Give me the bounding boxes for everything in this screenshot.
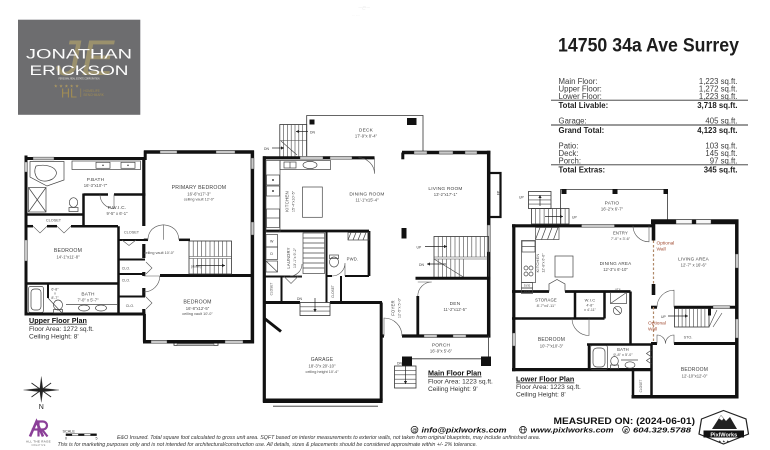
svg-text:BEDROOM: BEDROOM	[681, 367, 708, 373]
svg-text:Total Extras:: Total Extras:	[559, 165, 606, 174]
svg-text:16'-2"x 6'-7": 16'-2"x 6'-7"	[601, 206, 624, 211]
svg-text:PRIMARY BEDROOM: PRIMARY BEDROOM	[172, 185, 227, 191]
svg-text:604.329.5788: 604.329.5788	[633, 425, 692, 434]
svg-text:7'-0" x 3'-6": 7'-0" x 3'-6"	[611, 237, 631, 241]
svg-text:4'-8": 4'-8"	[586, 303, 594, 307]
svg-text:16'-9"x 5'-6": 16'-9"x 5'-6"	[430, 349, 453, 354]
svg-text:This is for marketing purposes: This is for marketing purposes only and …	[58, 442, 478, 448]
svg-text:UP: UP	[572, 215, 577, 219]
svg-text:UTIL: UTIL	[615, 288, 622, 292]
svg-text:12'-7" x 16'-6": 12'-7" x 16'-6"	[681, 263, 707, 268]
svg-text:www.pixlworks.com: www.pixlworks.com	[531, 425, 615, 434]
svg-text:0: 0	[65, 436, 67, 440]
svg-text:CREATIVE: CREATIVE	[31, 444, 45, 447]
svg-text:PWD.: PWD.	[347, 257, 359, 262]
svg-text:Wall: Wall	[657, 247, 666, 253]
svg-text:E&O Insured. Total square foo: E&O Insured. Total square foot calculate…	[117, 435, 540, 441]
svg-text:7'-0" x 5'-7": 7'-0" x 5'-7"	[77, 297, 99, 302]
svg-text:14'-1"x11'-8": 14'-1"x11'-8"	[56, 254, 80, 259]
svg-text:9'-5" x 6'-1": 9'-5" x 6'-1"	[106, 211, 128, 216]
svg-text:DN: DN	[397, 362, 402, 366]
svg-text:@: @	[412, 428, 417, 434]
svg-text:UP: UP	[417, 245, 422, 249]
svg-text:W: W	[270, 240, 274, 244]
svg-text:BATH: BATH	[617, 347, 629, 352]
svg-text:16'-8"x12'-5": 16'-8"x12'-5"	[186, 306, 210, 311]
svg-text:Wall: Wall	[648, 327, 657, 333]
svg-text:MEASURED ON: (2024-06-01): MEASURED ON: (2024-06-01)	[554, 416, 696, 426]
svg-text:15'-4"x10'-5": 15'-4"x10'-5"	[292, 190, 296, 212]
svg-text:Floor Area: 1223 sq.ft.: Floor Area: 1223 sq.ft.	[516, 384, 581, 391]
svg-text:12'-8"x 6'-6": 12'-8"x 6'-6"	[542, 253, 546, 273]
svg-text:8'-7": 8'-7"	[51, 296, 59, 300]
svg-text:12'-10"x12'-0": 12'-10"x12'-0"	[682, 373, 708, 378]
svg-text:PERSONAL REAL ESTATE CORPORATI: PERSONAL REAL ESTATE CORPORATION	[59, 77, 100, 81]
svg-text:SCALE: SCALE	[63, 429, 76, 433]
svg-text:CLOSET: CLOSET	[270, 283, 274, 296]
svg-text:LAUNDRY: LAUNDRY	[286, 247, 291, 268]
svg-text:CLOSET: CLOSET	[46, 218, 62, 222]
svg-text:Total Livable:: Total Livable:	[559, 101, 609, 110]
svg-text:DN: DN	[264, 147, 269, 151]
svg-text:JONATHAN: JONATHAN	[26, 47, 132, 63]
svg-text:Ceiling Height: 8': Ceiling Height: 8'	[29, 333, 79, 340]
svg-text:11'-2"x12'-5": 11'-2"x12'-5"	[443, 307, 467, 312]
svg-text:13'-2"x17'-1": 13'-2"x17'-1"	[434, 192, 458, 197]
svg-text:12'-3"x 6'-10": 12'-3"x 6'-10"	[603, 267, 628, 272]
svg-text:~e~: ~e~	[358, 5, 370, 12]
svg-text:ceiling vault 10'-0": ceiling vault 10'-0"	[144, 251, 175, 255]
svg-text:18'-3"x 20'-10": 18'-3"x 20'-10"	[309, 364, 336, 369]
svg-text:DN: DN	[310, 130, 315, 134]
svg-text:405 sq.ft.: 405 sq.ft.	[705, 117, 737, 126]
svg-text:3,718 sq.ft.: 3,718 sq.ft.	[697, 101, 737, 110]
svg-text:97 sq.ft.: 97 sq.ft.	[710, 157, 738, 166]
svg-text:ENTRY: ENTRY	[613, 231, 628, 236]
svg-text:UP: UP	[661, 315, 666, 319]
svg-text:9'-8" x 5'-0": 9'-8" x 5'-0"	[613, 353, 633, 357]
svg-text:KITCHEN: KITCHEN	[535, 254, 540, 273]
svg-text:30/30: 30/30	[524, 284, 531, 288]
svg-text:info@pixlworks.com: info@pixlworks.com	[422, 425, 508, 434]
svg-text:CLOSET: CLOSET	[639, 380, 643, 393]
svg-text:Floor Area: 1272 sq.ft.: Floor Area: 1272 sq.ft.	[29, 326, 94, 333]
svg-text:Ceiling Height: 9': Ceiling Height: 9'	[428, 386, 478, 393]
svg-text:14750 34a Ave Surrey: 14750 34a Ave Surrey	[558, 35, 739, 57]
svg-text:16'-6"x17'-3": 16'-6"x17'-3"	[187, 191, 211, 196]
svg-text:LIVING AREA: LIVING AREA	[678, 257, 710, 262]
svg-text:Lower Floor:: Lower Floor:	[559, 92, 602, 101]
svg-text:x 4'-11": x 4'-11"	[584, 308, 596, 312]
svg-text:17'-9"x 8'-4": 17'-9"x 8'-4"	[355, 133, 378, 138]
svg-text:10'-7"x10'-3": 10'-7"x10'-3"	[540, 343, 564, 348]
svg-text:Garage:: Garage:	[559, 117, 587, 126]
svg-text:-- ---: -- ---	[352, 12, 360, 17]
svg-text:5: 5	[96, 436, 98, 440]
svg-text:UP: UP	[519, 196, 524, 200]
svg-text:Grand Total:: Grand Total:	[559, 126, 605, 135]
svg-text:DINING AREA: DINING AREA	[600, 261, 633, 266]
svg-text:Main Floor Plan: Main Floor Plan	[428, 369, 482, 378]
svg-text:ceiling vault 12'-0": ceiling vault 12'-0"	[184, 198, 215, 202]
svg-text:CLO.: CLO.	[126, 304, 134, 308]
svg-text:(down): (down)	[191, 264, 201, 268]
svg-text:STO.: STO.	[684, 336, 693, 340]
svg-text:PixlWorks: PixlWorks	[710, 432, 737, 438]
svg-text:D: D	[270, 252, 273, 256]
svg-text:13'-1"x 9'-2": 13'-1"x 9'-2"	[293, 247, 297, 268]
svg-text:BENCHMARK: BENCHMARK	[84, 93, 105, 97]
svg-text:DN: DN	[419, 263, 424, 267]
svg-text:ceiling height 10'-4": ceiling height 10'-4"	[306, 370, 340, 374]
svg-text:4,123 sq.ft.: 4,123 sq.ft.	[697, 126, 737, 135]
svg-text:W.I.C: W.I.C	[585, 298, 596, 303]
svg-text:DN: DN	[297, 297, 302, 301]
svg-text:12'-5"x 5'-0": 12'-5"x 5'-0"	[398, 297, 402, 318]
svg-text:FOYER: FOYER	[391, 300, 396, 315]
svg-text:11'-1"x15'-4": 11'-1"x15'-4"	[355, 198, 379, 203]
svg-text:345 sq.ft.: 345 sq.ft.	[704, 165, 738, 174]
svg-text:Optional: Optional	[657, 241, 675, 247]
svg-text:STORAGE: STORAGE	[535, 298, 557, 303]
svg-text:Optional: Optional	[648, 321, 666, 327]
svg-text:BEDROOM: BEDROOM	[538, 337, 565, 343]
svg-text:8'-7"x4'-11": 8'-7"x4'-11"	[537, 304, 557, 308]
svg-text:N: N	[39, 404, 44, 411]
svg-text:Ceiling Height: 8': Ceiling Height: 8'	[516, 392, 566, 399]
svg-text:GARAGE: GARAGE	[311, 357, 334, 363]
svg-text:CLOSET: CLOSET	[124, 230, 140, 234]
svg-text:Porch:: Porch:	[559, 157, 582, 166]
svg-text:16'-3"x10'-7": 16'-3"x10'-7"	[84, 183, 108, 188]
svg-text:Upper Floor Plan: Upper Floor Plan	[29, 316, 87, 325]
svg-text:CLO.: CLO.	[122, 267, 130, 271]
svg-text:30/30: 30/30	[524, 289, 531, 293]
svg-text:CLO.: CLO.	[122, 279, 130, 283]
svg-text:Floor Area: 1223 sq.ft.: Floor Area: 1223 sq.ft.	[428, 379, 493, 386]
svg-text:BEDROOM: BEDROOM	[54, 248, 82, 254]
svg-text:Lower Floor Plan: Lower Floor Plan	[516, 375, 574, 384]
svg-text:ALL THE RAGE: ALL THE RAGE	[26, 439, 51, 443]
svg-text:KITCHEN: KITCHEN	[285, 191, 290, 212]
svg-text:CLOSET: CLOSET	[331, 285, 335, 298]
svg-text:1,223 sq.ft.: 1,223 sq.ft.	[699, 92, 738, 101]
svg-text:BEDROOM: BEDROOM	[183, 300, 211, 306]
svg-text:HL: HL	[61, 87, 77, 101]
svg-text:ceiling vault 10'-0": ceiling vault 10'-0"	[182, 312, 213, 316]
svg-text:FP: FP	[497, 190, 501, 195]
svg-text:★ ★ ★: ★ ★ ★	[718, 440, 729, 444]
